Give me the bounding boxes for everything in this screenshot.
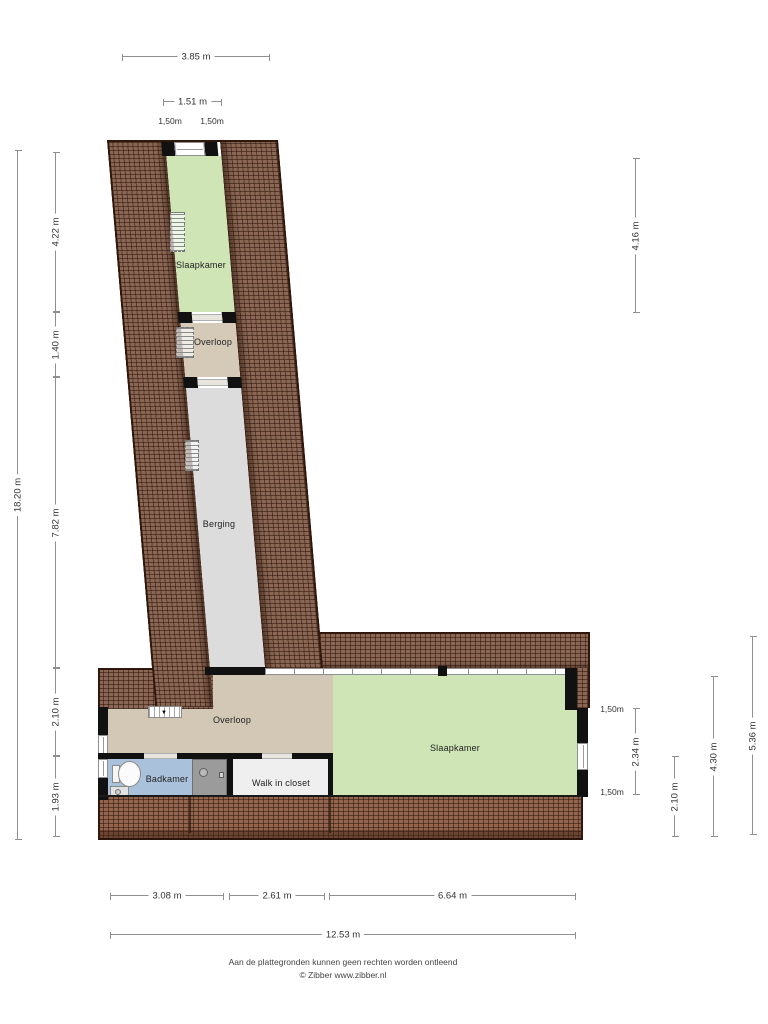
staircase-small-icon [176, 327, 194, 358]
dim-label: 6.64 m [434, 891, 471, 902]
wall-stub [204, 142, 218, 156]
roof-seam-line [329, 797, 331, 833]
dim-label: 4.16 m [631, 217, 642, 254]
dim-label: 2.10 m [51, 693, 62, 730]
dim-top-151: 1.51 m [163, 101, 222, 102]
floor-roof-edge-line [98, 795, 583, 797]
dim-right-416: 4.16 m [635, 158, 636, 313]
wall-stub [438, 666, 447, 676]
window [98, 759, 108, 778]
dim-label: 1.51 m [174, 97, 211, 108]
dim-right-536: 5.36 m [752, 636, 753, 835]
dim-right-150-lower: 1,50m [600, 787, 624, 797]
dim-left-140: 1.40 m [55, 312, 56, 377]
dim-top-385: 3.85 m [122, 56, 270, 57]
wall-stub [178, 312, 193, 323]
door-opening [192, 314, 223, 321]
label-badkamer: Badkamer [146, 774, 189, 784]
roof-right-corner [577, 668, 590, 708]
wall-stub [222, 312, 237, 323]
radiator-icon [170, 212, 185, 252]
dim-bottom-308: 3.08 m [110, 895, 224, 896]
roof-seam-line [189, 797, 191, 833]
label-overloop-bottom: Overloop [213, 715, 251, 725]
dim-right-430: 4.30 m [713, 676, 714, 837]
wall-right-exterior [577, 708, 588, 743]
dim-left-193: 1.93 m [55, 756, 56, 837]
junction-wall [205, 667, 267, 675]
dim-label: 2.34 m [631, 733, 642, 770]
dim-label: 2.61 m [258, 891, 295, 902]
dim-right-210: 2.10 m [674, 756, 675, 837]
dim-label: 7.82 m [51, 504, 62, 541]
dim-bottom-261: 2.61 m [229, 895, 325, 896]
dim-label: 5.36 m [748, 717, 759, 754]
label-slaapkamer-top: Slaapkamer [176, 260, 226, 270]
roof-top-band [300, 632, 590, 670]
dim-bottom-1253: 12.53 m [110, 934, 576, 935]
room-slaapkamer-bottom [333, 675, 565, 797]
dim-label: 1.40 m [51, 326, 62, 363]
wall-stub [161, 142, 175, 156]
dim-left-210: 2.10 m [55, 668, 56, 756]
dim-left-1820: 18.20 m [17, 150, 18, 840]
wall-stub [227, 377, 242, 388]
dim-right-234: 2.34 m [635, 708, 636, 795]
dim-label: 3.08 m [148, 891, 185, 902]
radiator-icon [185, 440, 199, 471]
dim-label: 18.20 m [13, 474, 24, 516]
wall-stub-bedroom [565, 668, 577, 710]
wall-right-exterior [577, 770, 588, 797]
window [174, 142, 205, 156]
dim-label: 3.85 m [177, 52, 214, 63]
dim-label: 4.22 m [51, 213, 62, 250]
label-walk-in-closet: Walk in closet [252, 778, 310, 788]
label-berging: Berging [203, 519, 235, 529]
staircase-icon: ▼ [148, 706, 182, 718]
dim-top-150-left: 1,50m [158, 116, 182, 126]
roof-bottom-band [98, 797, 583, 840]
label-slaapkamer-bottom: Slaapkamer [430, 743, 480, 753]
dim-left-422: 4.22 m [55, 152, 56, 312]
footer-disclaimer: Aan de plattegronden kunnen geen rechten… [110, 956, 576, 969]
dim-label: 4.30 m [709, 738, 720, 775]
knee-height-line [265, 668, 565, 675]
shower [192, 759, 227, 797]
floorplan-canvas: ▼ Slaapkamer Overloop Berging Overloop B… [0, 0, 768, 1024]
wall-closet-bedroom [328, 753, 333, 797]
dim-label: 2.10 m [670, 778, 681, 815]
window [577, 743, 588, 770]
dim-right-150-upper: 1,50m [600, 704, 624, 714]
stair-arrow-icon: ▼ [161, 710, 167, 716]
toilet-bowl-icon [118, 761, 141, 787]
shower-valve-icon [219, 772, 224, 778]
wall-stub [183, 377, 198, 388]
label-overloop-top: Overloop [194, 337, 232, 347]
vertical-wing [107, 140, 326, 707]
dim-top-150-right: 1,50m [200, 116, 224, 126]
dim-left-782: 7.82 m [55, 377, 56, 668]
door-opening [197, 379, 228, 386]
dim-bottom-664: 6.64 m [329, 895, 576, 896]
room-slaapkamer-bottom-extension [565, 710, 577, 797]
footer: Aan de plattegronden kunnen geen rechten… [110, 956, 576, 982]
dim-label: 12.53 m [322, 930, 364, 941]
footer-credit: © Zibber www.zibber.nl [110, 969, 576, 982]
shower-drain-icon [199, 768, 208, 777]
dim-label: 1.93 m [51, 778, 62, 815]
